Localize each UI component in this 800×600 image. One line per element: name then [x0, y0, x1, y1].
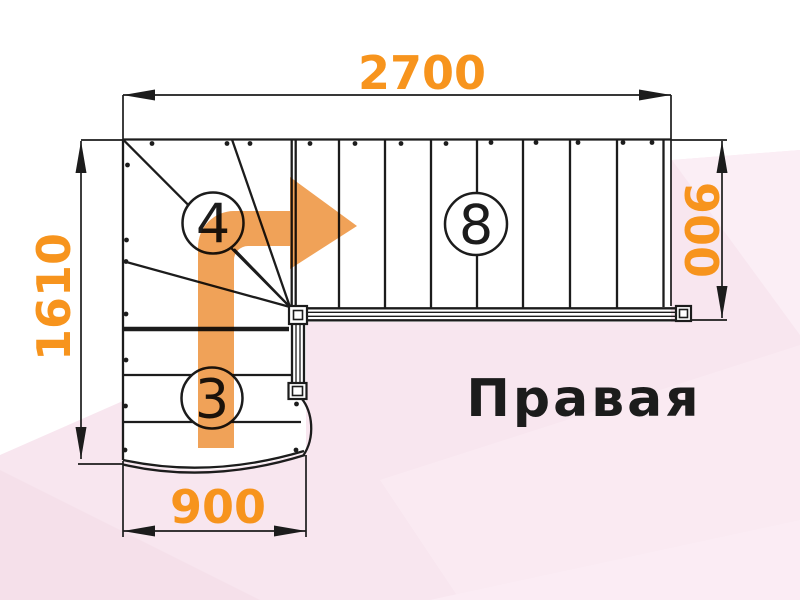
dim-bottom-label: 900 [170, 480, 266, 534]
newel-post-lower [289, 383, 307, 399]
dim-right-label: 900 [674, 182, 728, 278]
newel-post-corner [289, 306, 307, 324]
stair-direction-label: Правая [466, 369, 701, 429]
newel-post-right [676, 306, 691, 321]
staircase-plan-drawing: 2700 1610 900 900 4 8 3 Правая [0, 0, 800, 600]
dim-top-label: 2700 [358, 46, 486, 100]
upper-flight-step-count: 8 [459, 194, 493, 257]
dim-left-label: 1610 [27, 233, 81, 361]
